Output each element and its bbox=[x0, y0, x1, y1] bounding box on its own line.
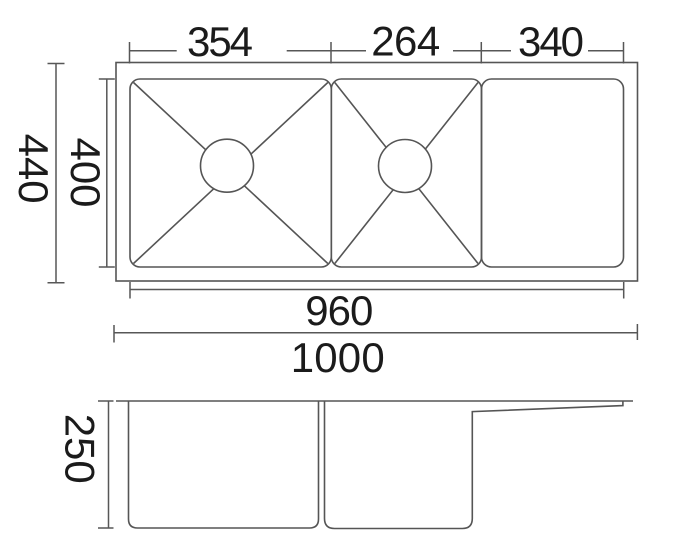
svg-text:960: 960 bbox=[305, 287, 373, 334]
svg-text:400: 400 bbox=[62, 138, 109, 208]
svg-text:264: 264 bbox=[371, 18, 440, 65]
svg-text:1000: 1000 bbox=[291, 334, 385, 381]
svg-text:340: 340 bbox=[518, 18, 584, 65]
svg-text:354: 354 bbox=[187, 18, 253, 65]
svg-text:250: 250 bbox=[56, 414, 103, 484]
svg-text:440: 440 bbox=[10, 134, 57, 204]
